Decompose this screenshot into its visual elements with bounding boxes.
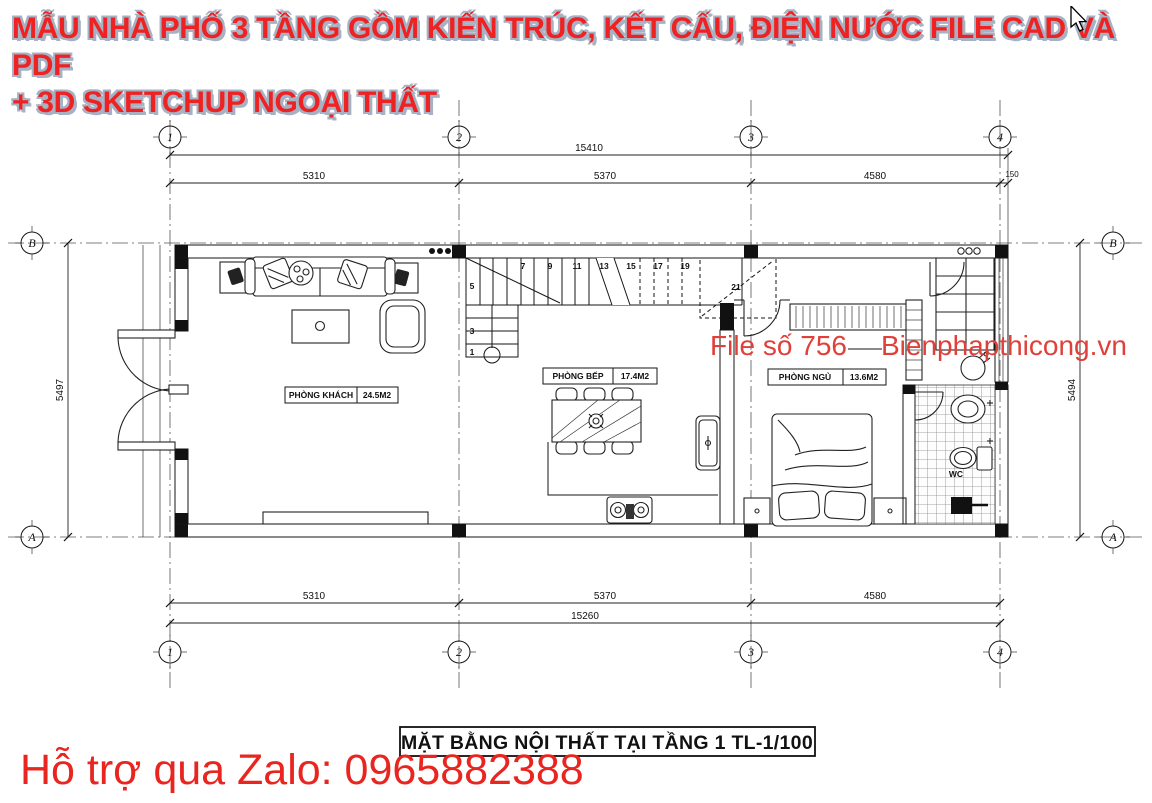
svg-text:4: 4 xyxy=(997,645,1003,659)
room-label-kitchen: PHÒNG BẾP 17.4M2 xyxy=(543,368,657,384)
svg-text:1: 1 xyxy=(167,645,173,659)
grid-marker-1-top: 1 xyxy=(153,120,187,154)
svg-text:17.4M2: 17.4M2 xyxy=(621,371,650,381)
dim-bottom-seg1: 5310 xyxy=(303,591,326,602)
svg-text:24.5M2: 24.5M2 xyxy=(363,390,392,400)
grid-marker-B-right: B xyxy=(1096,226,1130,260)
svg-text:5: 5 xyxy=(470,281,475,291)
bed xyxy=(772,414,872,526)
dim-bottom-total: 15260 xyxy=(571,611,599,622)
page-title-line2: + 3D SKETCHUP NGOẠI THẤT xyxy=(12,84,1147,121)
kitchen-sink xyxy=(696,416,720,470)
svg-text:13: 13 xyxy=(599,261,609,271)
svg-text:B: B xyxy=(1109,236,1117,250)
watermark-file-number: File số 756 xyxy=(710,330,847,362)
stove xyxy=(607,497,652,523)
svg-text:13.6M2: 13.6M2 xyxy=(850,372,879,382)
screenshot-stage: 15410 5310 5370 4580 150 5310 5370 4580 … xyxy=(0,0,1152,803)
dim-bottom-seg2: 5370 xyxy=(594,591,617,602)
svg-text:15: 15 xyxy=(626,261,636,271)
grid-marker-1-bottom: 1 xyxy=(153,635,187,669)
svg-text:17: 17 xyxy=(653,261,663,271)
dim-top-seg2: 5370 xyxy=(594,171,617,182)
svg-text:3: 3 xyxy=(470,326,475,336)
svg-text:A: A xyxy=(1108,530,1117,544)
dim-top-seg3: 4580 xyxy=(864,171,887,182)
svg-text:7: 7 xyxy=(521,261,526,271)
svg-text:9: 9 xyxy=(548,261,553,271)
kitchen-dining xyxy=(548,388,720,523)
dim-bottom-seg3: 4580 xyxy=(864,591,887,602)
svg-text:2: 2 xyxy=(456,645,462,659)
grid-marker-2-top: 2 xyxy=(442,120,476,154)
stove-center xyxy=(626,504,634,519)
grid-marker-2-bottom: 2 xyxy=(442,635,476,669)
page-title: MẪU NHÀ PHỐ 3 TẦNG GỒM KIẾN TRÚC, KẾT CẤ… xyxy=(12,10,1147,121)
svg-text:PHÒNG KHÁCH: PHÒNG KHÁCH xyxy=(289,389,353,400)
tv-cabinet xyxy=(263,512,428,524)
grid-marker-4-bottom: 4 xyxy=(983,635,1017,669)
svg-text:2: 2 xyxy=(456,130,462,144)
dining-table xyxy=(552,400,641,442)
dim-top-seg1: 5310 xyxy=(303,171,326,182)
page-title-line1: MẪU NHÀ PHỐ 3 TẦNG GỒM KIẾN TRÚC, KẾT CẤ… xyxy=(12,10,1147,84)
grid-marker-B-left: B xyxy=(15,226,49,260)
svg-text:11: 11 xyxy=(573,261,582,271)
dim-top-total: 15410 xyxy=(575,143,603,154)
dim-left-total: 5497 xyxy=(55,378,66,401)
svg-text:1: 1 xyxy=(470,347,475,357)
zalo-support-text: Hỗ trợ qua Zalo: 0965882388 xyxy=(20,746,584,795)
grid-marker-4-top: 4 xyxy=(983,120,1017,154)
grid-marker-A-left: A xyxy=(15,520,49,554)
mouse-cursor-icon xyxy=(1070,6,1096,36)
entry-door xyxy=(118,330,188,450)
grid-marker-3-bottom: 3 xyxy=(734,635,768,669)
dim-top-seg4: 150 xyxy=(1005,170,1019,179)
svg-text:19: 19 xyxy=(680,261,690,271)
svg-text:A: A xyxy=(27,530,36,544)
wardrobe xyxy=(790,304,910,330)
armchair xyxy=(380,300,425,353)
svg-text:21: 21 xyxy=(731,282,741,292)
svg-text:1: 1 xyxy=(167,130,173,144)
svg-text:PHÒNG BẾP: PHÒNG BẾP xyxy=(552,370,603,381)
svg-text:3: 3 xyxy=(747,645,754,659)
nightstand-right xyxy=(874,498,906,524)
svg-text:4: 4 xyxy=(997,130,1003,144)
svg-text:3: 3 xyxy=(747,130,754,144)
grid-marker-3-top: 3 xyxy=(734,120,768,154)
bathroom: WC xyxy=(903,385,995,524)
ceiling-dots xyxy=(429,248,980,254)
dim-right-total: 5494 xyxy=(1067,378,1078,401)
svg-text:PHÒNG NGỦ: PHÒNG NGỦ xyxy=(779,371,831,382)
room-label-bedroom: PHÒNG NGỦ 13.6M2 xyxy=(768,369,886,385)
coffee-table xyxy=(292,310,349,343)
nightstand-left xyxy=(744,498,770,524)
room-label-living: PHÒNG KHÁCH 24.5M2 xyxy=(285,387,398,403)
svg-text:B: B xyxy=(28,236,36,250)
watermark-website: Bienphapthicong.vn xyxy=(881,330,1127,362)
grid-marker-A-right: A xyxy=(1096,520,1130,554)
sofa xyxy=(245,257,395,296)
wc-label: WC xyxy=(949,469,963,479)
